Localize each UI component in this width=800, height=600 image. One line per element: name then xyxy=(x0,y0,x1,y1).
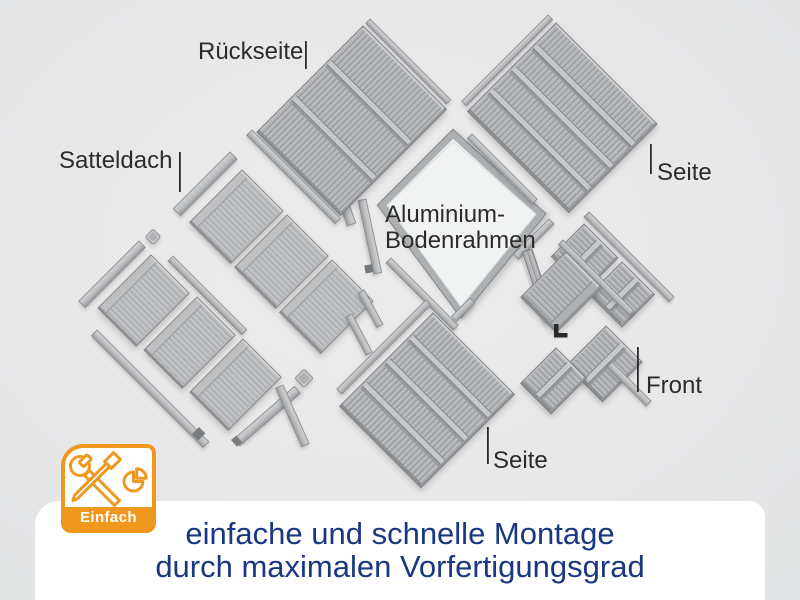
svg-text:Seite: Seite xyxy=(493,447,548,474)
svg-text:Bodenrahmen: Bodenrahmen xyxy=(385,227,536,254)
svg-text:Satteldach: Satteldach xyxy=(59,147,172,174)
svg-text:Aluminium-: Aluminium- xyxy=(385,201,505,228)
svg-text:Front: Front xyxy=(646,372,702,399)
svg-text:Seite: Seite xyxy=(657,159,712,186)
svg-text:Rückseite: Rückseite xyxy=(198,38,303,65)
